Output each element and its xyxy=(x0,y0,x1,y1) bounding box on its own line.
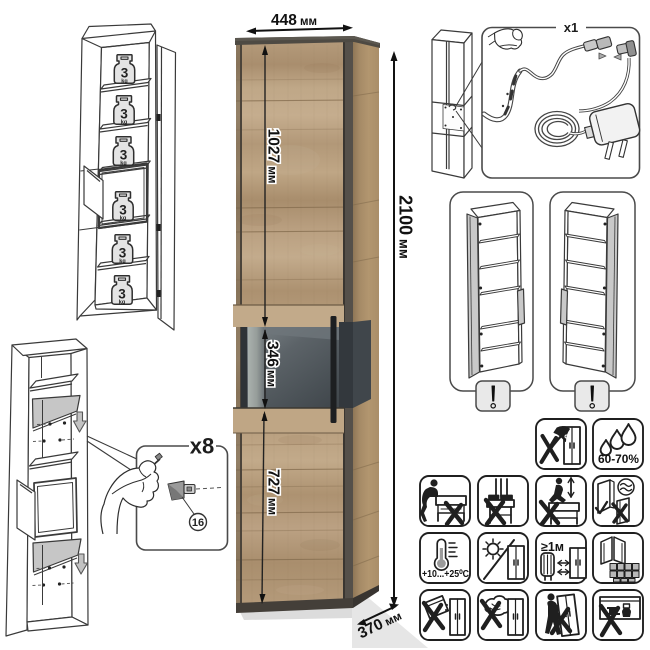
svg-text:x8: x8 xyxy=(190,434,214,459)
svg-text:+10...+25⁰C: +10...+25⁰C xyxy=(422,569,469,580)
svg-text:16: 16 xyxy=(192,517,204,529)
svg-text:x1: x1 xyxy=(564,20,578,35)
svg-text:2100 мм: 2100 мм xyxy=(396,195,416,259)
svg-text:≥1м: ≥1м xyxy=(541,540,564,554)
svg-text:448 мм: 448 мм xyxy=(271,12,317,29)
svg-text:60-70%: 60-70% xyxy=(598,452,639,466)
